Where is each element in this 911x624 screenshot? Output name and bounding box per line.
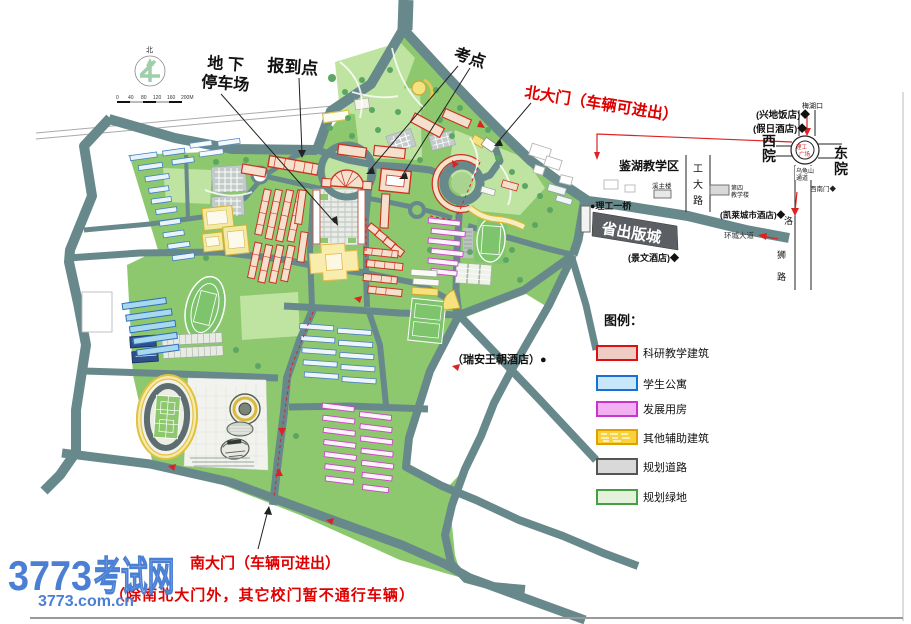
svg-text:狮: 狮: [777, 250, 786, 260]
svg-text:梅湖口: 梅湖口: [802, 101, 823, 110]
svg-text:路: 路: [693, 194, 703, 207]
svg-text:路: 路: [777, 271, 786, 282]
svg-text:西: 西: [762, 133, 776, 149]
svg-text:科研教学建筑: 科研教学建筑: [643, 346, 709, 360]
svg-text:(景文酒店)◆: (景文酒店)◆: [628, 252, 680, 263]
svg-text:环城大道: 环城大道: [724, 230, 754, 240]
svg-text:(凯莱城市酒店)◆: (凯莱城市酒店)◆: [720, 210, 786, 220]
svg-text:规划绿地: 规划绿地: [643, 490, 687, 504]
svg-text:理工: 理工: [796, 144, 808, 151]
svg-text:第四: 第四: [731, 184, 743, 192]
svg-text:通道: 通道: [796, 174, 808, 182]
svg-text:南大门（车辆可进出）: 南大门（车辆可进出）: [190, 554, 340, 572]
svg-text:0: 0: [116, 95, 119, 101]
svg-text:院: 院: [834, 161, 848, 177]
svg-text:工: 工: [693, 164, 703, 175]
svg-text:其他辅助建筑: 其他辅助建筑: [643, 431, 709, 445]
svg-text:200M: 200M: [181, 95, 194, 101]
svg-text:160: 160: [167, 95, 176, 101]
svg-text:洛: 洛: [784, 215, 793, 226]
svg-text:发展用房: 发展用房: [643, 402, 687, 416]
svg-text:（瑞安王朝酒店）●: （瑞安王朝酒店）●: [452, 352, 547, 366]
svg-text:乌龟山: 乌龟山: [796, 167, 814, 175]
svg-text:大: 大: [693, 178, 703, 191]
svg-text:学生公寓: 学生公寓: [643, 377, 687, 391]
svg-text:(兴地饭店)◆: (兴地饭店)◆: [756, 109, 810, 121]
svg-text:北: 北: [146, 46, 153, 54]
svg-text:120: 120: [153, 95, 162, 101]
svg-text:40: 40: [128, 95, 134, 101]
svg-text:院: 院: [762, 148, 776, 164]
svg-text:报到点: 报到点: [267, 55, 319, 79]
svg-text:西南门◆: 西南门◆: [810, 184, 837, 193]
svg-text:3773.com.cn: 3773.com.cn: [38, 593, 134, 610]
svg-text:80: 80: [141, 95, 147, 101]
svg-text:教学楼: 教学楼: [731, 191, 749, 199]
svg-text:图例：: 图例：: [604, 313, 643, 328]
svg-text:广场: 广场: [799, 150, 811, 158]
svg-text:●理工一桥: ●理工一桥: [590, 200, 632, 211]
svg-text:地 下: 地 下: [207, 53, 245, 74]
svg-text:东: 东: [834, 145, 848, 161]
svg-text:溪主楼: 溪主楼: [652, 181, 672, 190]
svg-text:鉴湖教学区: 鉴湖教学区: [618, 158, 679, 173]
svg-text:规划道路: 规划道路: [643, 460, 687, 474]
